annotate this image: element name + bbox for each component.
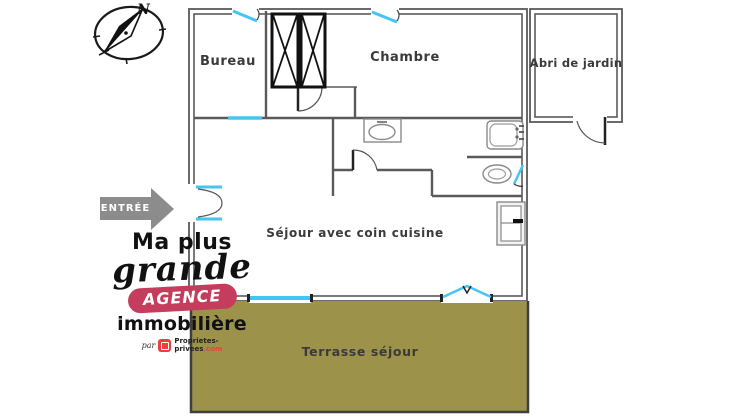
entrance-arrow: ENTRÉE: [99, 188, 175, 230]
logo-badge: AGENCE: [127, 283, 237, 314]
room-label-sejour: Séjour avec coin cuisine: [252, 226, 458, 240]
room-label-abri-de-jardin: Abri de jardin: [528, 56, 624, 70]
logo-brand-tld: .com: [203, 345, 222, 353]
agency-logo: Ma plus grande AGENCE immobilière par Pr…: [108, 232, 256, 353]
room-label-chambre: Chambre: [338, 50, 472, 65]
toilet-icon: [483, 165, 511, 183]
room-label-terrasse: Terrasse séjour: [258, 344, 462, 359]
shower-tray-icon: [487, 121, 524, 149]
logo-brand-line2: privees: [174, 345, 203, 353]
logo-byline: par Proprietes- privees.com: [108, 338, 256, 353]
logo-line3: immobilière: [108, 315, 256, 334]
entrance-label: ENTRÉE: [101, 203, 150, 214]
fridge-icon: [497, 202, 525, 245]
room-label-bureau: Bureau: [188, 54, 268, 69]
wardrobe-right-icon: [301, 14, 325, 87]
wardrobe-left-icon: [272, 14, 298, 87]
logo-brand-text: Proprietes- privees.com: [174, 338, 222, 353]
proprietes-privees-icon: [158, 339, 171, 352]
logo-line2: grande: [107, 249, 256, 288]
compass-icon: N: [92, 2, 166, 64]
washbasin-icon: [364, 119, 401, 142]
compass-north-label: N: [136, 2, 151, 18]
floor-plan-page: N Bureau Chambre Abri de jardin Séjour a…: [0, 0, 750, 420]
entrance-arrow-tip-icon: [151, 188, 174, 230]
logo-by-prefix: par: [142, 342, 156, 350]
